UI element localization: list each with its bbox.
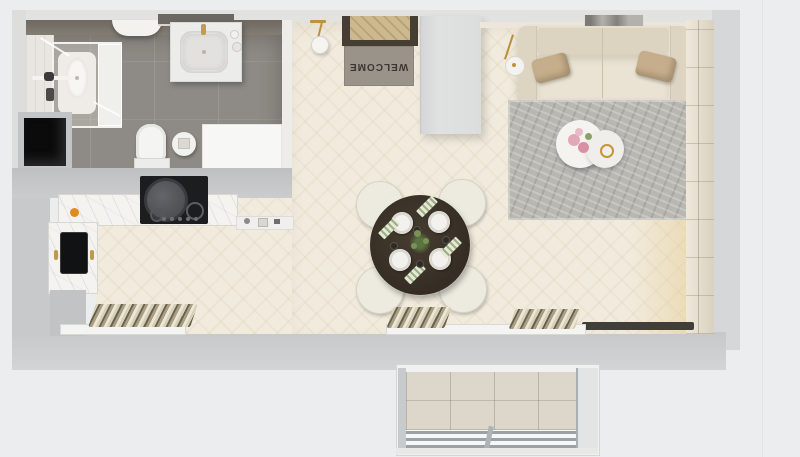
plant-sprig xyxy=(411,243,417,249)
hall-wardrobe xyxy=(420,16,481,134)
bottom-exterior-wall xyxy=(12,332,726,370)
bouquet-leaf xyxy=(585,133,592,140)
place-setting-plate xyxy=(389,249,411,271)
bath-mat xyxy=(202,124,282,170)
radiator xyxy=(509,309,581,329)
sink-drain xyxy=(202,50,206,54)
floor-lamp-bulb xyxy=(512,63,516,67)
balcony-tiled-floor xyxy=(406,372,576,430)
bathroom-partition-wall xyxy=(282,20,292,178)
balcony-side-glass xyxy=(576,368,598,452)
right-exterior-wall xyxy=(712,10,740,350)
orange-fruit xyxy=(70,208,79,217)
plant-sprig xyxy=(414,230,421,237)
balcony-outer-edge xyxy=(396,448,598,454)
flower-bouquet xyxy=(578,142,589,153)
shower-drain xyxy=(75,76,79,80)
storage-niche xyxy=(24,118,66,166)
toilet xyxy=(136,124,166,162)
gold-dish xyxy=(600,144,614,158)
kitchen-side-wall xyxy=(12,198,50,334)
stool-item xyxy=(178,138,190,149)
stove-knob-icon xyxy=(178,217,182,221)
welcome-mat: WELCOME xyxy=(344,46,414,86)
cup xyxy=(416,260,424,268)
paneled-wall-line xyxy=(698,20,699,334)
floorplan-render: WELCOME xyxy=(0,0,800,457)
shower-head-icon xyxy=(44,72,54,81)
entry-door xyxy=(350,16,410,40)
stove-knob-icon xyxy=(194,217,198,221)
hand-shower-icon xyxy=(46,88,54,101)
plant-sprig xyxy=(423,238,429,244)
pendant-lamp xyxy=(311,36,329,54)
kitchen-sink xyxy=(60,232,88,274)
stove-knob-icon xyxy=(186,217,190,221)
shelf-item xyxy=(244,218,250,224)
flower-bouquet xyxy=(575,128,583,136)
faucet-icon xyxy=(201,24,206,35)
paneled-wall xyxy=(686,20,714,334)
welcome-mat-text: WELCOME xyxy=(349,61,408,72)
shelf-item xyxy=(258,218,268,227)
cabinet-handle-icon xyxy=(90,250,94,260)
radiator xyxy=(387,307,452,328)
balcony-frame xyxy=(398,368,406,452)
window-track xyxy=(582,322,694,330)
stove-knob-icon xyxy=(170,217,174,221)
toiletry-bottle xyxy=(232,42,242,52)
toiletry-bottle xyxy=(230,30,239,39)
background-seam xyxy=(762,0,763,457)
radiator xyxy=(88,304,197,327)
cabinet-handle-icon xyxy=(54,250,58,260)
sofa-cushion-seam xyxy=(602,28,603,98)
pendant-lamp-arm xyxy=(310,20,326,23)
cup xyxy=(442,236,450,244)
cup xyxy=(390,242,398,250)
place-setting-plate xyxy=(428,211,450,233)
shelf-item xyxy=(274,219,280,224)
sofa-back-cushions xyxy=(537,28,669,54)
stove-knob-icon xyxy=(162,217,166,221)
